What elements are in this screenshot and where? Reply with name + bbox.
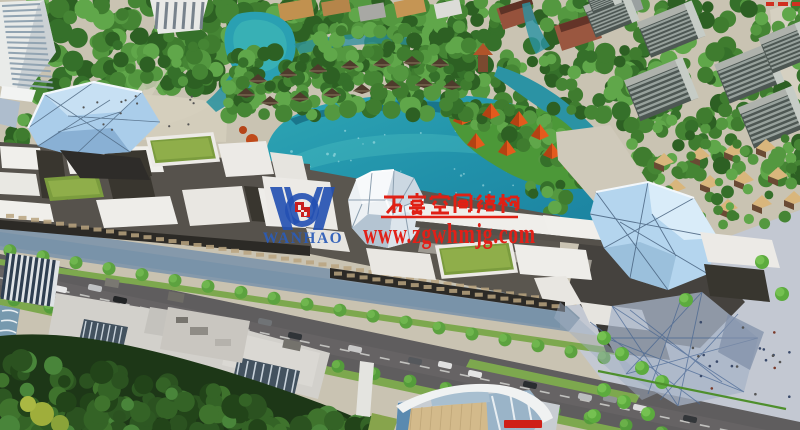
svg-text:WANHAO: WANHAO: [263, 230, 343, 247]
svg-text:www.zgwhmjg.com: www.zgwhmjg.com: [363, 219, 536, 250]
